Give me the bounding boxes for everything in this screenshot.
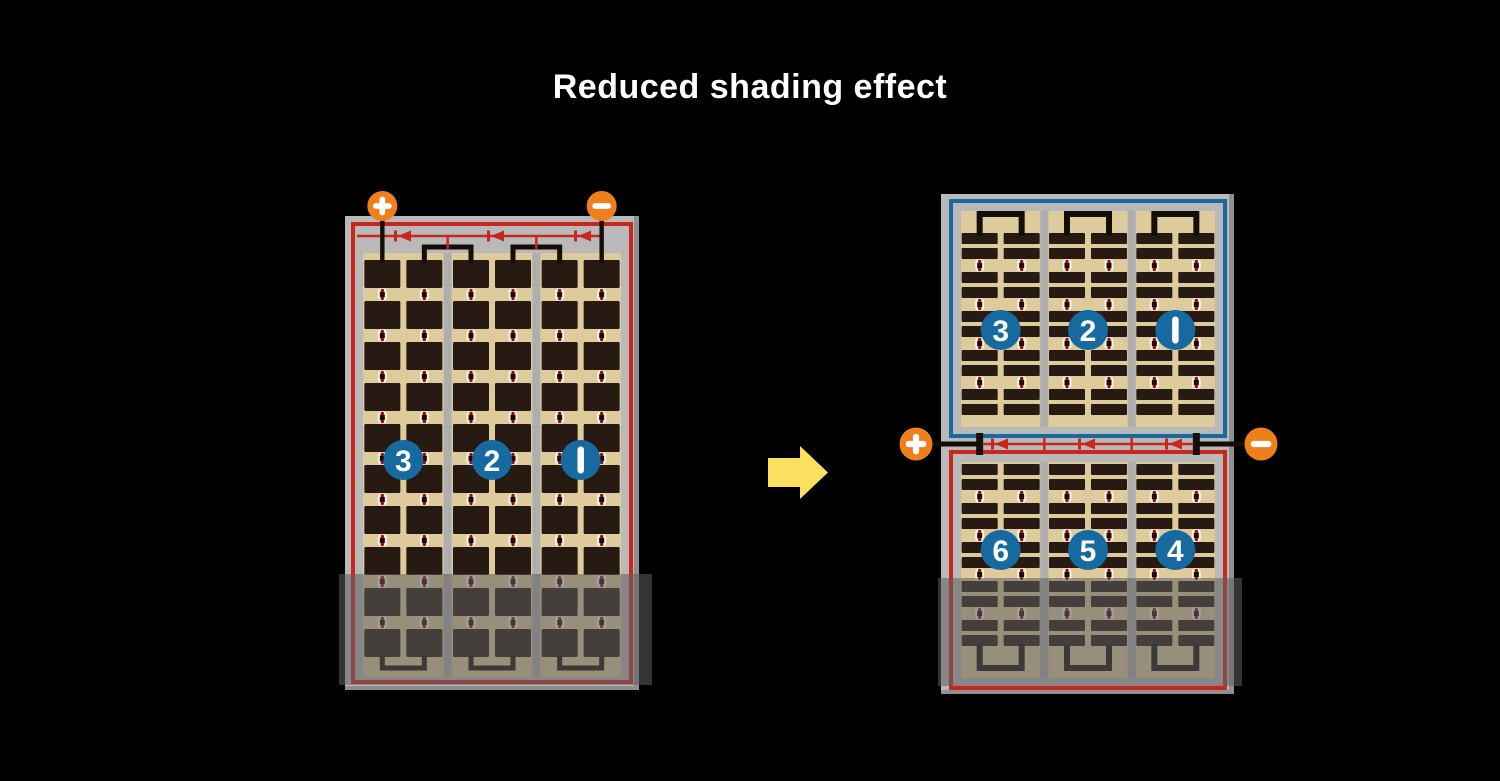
cell-connector-dot bbox=[1105, 298, 1114, 311]
cell-connector-dot bbox=[1063, 376, 1072, 389]
cell-connector-dot bbox=[597, 329, 606, 342]
cell-connector-dot bbox=[378, 411, 387, 424]
cell-connector-dot bbox=[1105, 490, 1114, 503]
cell-connector-dot bbox=[509, 493, 518, 506]
cell-string-badge: 5 bbox=[1068, 530, 1108, 570]
cell-connector-dot bbox=[1063, 259, 1072, 272]
cell-connector-dot bbox=[420, 493, 429, 506]
half-cut-panel: 32654 bbox=[900, 194, 1278, 694]
column-divider bbox=[1128, 211, 1136, 427]
cell-string-badge bbox=[1155, 310, 1195, 350]
positive-terminal bbox=[367, 191, 397, 221]
cell-connector-dot bbox=[1105, 529, 1114, 542]
cell-string-badge: 2 bbox=[472, 440, 512, 480]
cell-connector-dot bbox=[420, 534, 429, 547]
cell-connector-dot bbox=[975, 298, 984, 311]
transition-arrow-icon bbox=[768, 446, 828, 499]
cell-connector-dot bbox=[555, 288, 564, 301]
column-divider bbox=[1040, 211, 1048, 427]
cell-connector-dot bbox=[1150, 259, 1159, 272]
cell-connector-dot bbox=[1063, 298, 1072, 311]
cell-connector-dot bbox=[467, 493, 476, 506]
cell-string-number: 2 bbox=[1080, 315, 1097, 348]
cell-string-badge: 2 bbox=[1068, 310, 1108, 350]
cell-connector-dot bbox=[1192, 490, 1201, 503]
cell-connector-dot bbox=[509, 288, 518, 301]
cell-connector-dot bbox=[555, 534, 564, 547]
minus-icon bbox=[592, 203, 611, 209]
cell-connector-dot bbox=[420, 411, 429, 424]
cell-connector-dot bbox=[1105, 259, 1114, 272]
cell-connector-dot bbox=[555, 370, 564, 383]
cell-connector-dot bbox=[555, 411, 564, 424]
cell-connector-dot bbox=[975, 529, 984, 542]
cell-connector-dot bbox=[597, 534, 606, 547]
cell-connector-dot bbox=[467, 288, 476, 301]
minus-icon bbox=[1251, 441, 1272, 447]
cell-connector-dot bbox=[378, 534, 387, 547]
cell-connector-dot bbox=[597, 370, 606, 383]
cell-connector-dot bbox=[378, 493, 387, 506]
cell-connector-dot bbox=[378, 288, 387, 301]
shading-overlay bbox=[938, 578, 1242, 686]
cell-connector-dot bbox=[1150, 529, 1159, 542]
cell-string-number: 5 bbox=[1080, 535, 1097, 568]
cell-connector-dot bbox=[1192, 529, 1201, 542]
cell-connector-dot bbox=[1192, 376, 1201, 389]
cell-string-badge: 4 bbox=[1155, 530, 1195, 570]
cell-connector-dot bbox=[1063, 529, 1072, 542]
cell-connector-dot bbox=[1017, 259, 1026, 272]
cell-connector-dot bbox=[975, 259, 984, 272]
cell-connector-dot bbox=[597, 411, 606, 424]
cell-string-number: 3 bbox=[395, 445, 412, 478]
cell-string-badge: 3 bbox=[981, 310, 1021, 350]
cell-string-number bbox=[1172, 317, 1179, 344]
cell-string-badge: 3 bbox=[383, 440, 423, 480]
cell-connector-dot bbox=[975, 376, 984, 389]
cell-connector-dot bbox=[1105, 376, 1114, 389]
cell-connector-dot bbox=[597, 288, 606, 301]
cell-string-number: 3 bbox=[992, 315, 1009, 348]
cell-connector-dot bbox=[1063, 490, 1072, 503]
cell-connector-dot bbox=[509, 411, 518, 424]
cell-connector-dot bbox=[1017, 298, 1026, 311]
cell-string-badge bbox=[561, 440, 601, 480]
cell-connector-dot bbox=[1150, 298, 1159, 311]
cell-connector-dot bbox=[1192, 259, 1201, 272]
positive-terminal bbox=[900, 428, 933, 461]
cell-connector-dot bbox=[509, 534, 518, 547]
cell-connector-dot bbox=[1017, 376, 1026, 389]
cell-connector-dot bbox=[555, 493, 564, 506]
cell-connector-dot bbox=[420, 370, 429, 383]
cell-connector-dot bbox=[1017, 529, 1026, 542]
cell-connector-dot bbox=[378, 370, 387, 383]
cell-connector-dot bbox=[378, 329, 387, 342]
cell-connector-dot bbox=[420, 288, 429, 301]
cell-connector-dot bbox=[975, 490, 984, 503]
negative-terminal bbox=[587, 191, 617, 221]
full-cell-panel: 32 bbox=[339, 191, 652, 690]
cell-string-number: 2 bbox=[484, 445, 501, 478]
cell-connector-dot bbox=[509, 370, 518, 383]
cell-connector-dot bbox=[467, 411, 476, 424]
cell-connector-dot bbox=[467, 534, 476, 547]
shading-diagram: 3232654 bbox=[0, 0, 1500, 781]
cell-connector-dot bbox=[467, 329, 476, 342]
cell-string-number bbox=[577, 447, 584, 474]
cell-connector-dot bbox=[420, 329, 429, 342]
cell-connector-dot bbox=[1192, 298, 1201, 311]
negative-terminal bbox=[1245, 428, 1278, 461]
cell-connector-dot bbox=[1150, 376, 1159, 389]
cell-connector-dot bbox=[509, 329, 518, 342]
cell-connector-dot bbox=[597, 493, 606, 506]
diagram-canvas: Reduced shading effect 3232654 bbox=[0, 0, 1500, 781]
cell-string-number: 6 bbox=[992, 535, 1009, 568]
cell-connector-dot bbox=[1150, 490, 1159, 503]
cell-string-badge: 6 bbox=[981, 530, 1021, 570]
cell-string-number: 4 bbox=[1167, 535, 1184, 568]
cell-connector-dot bbox=[467, 370, 476, 383]
shading-overlay bbox=[339, 574, 652, 685]
cell-connector-dot bbox=[555, 329, 564, 342]
cell-connector-dot bbox=[1017, 490, 1026, 503]
